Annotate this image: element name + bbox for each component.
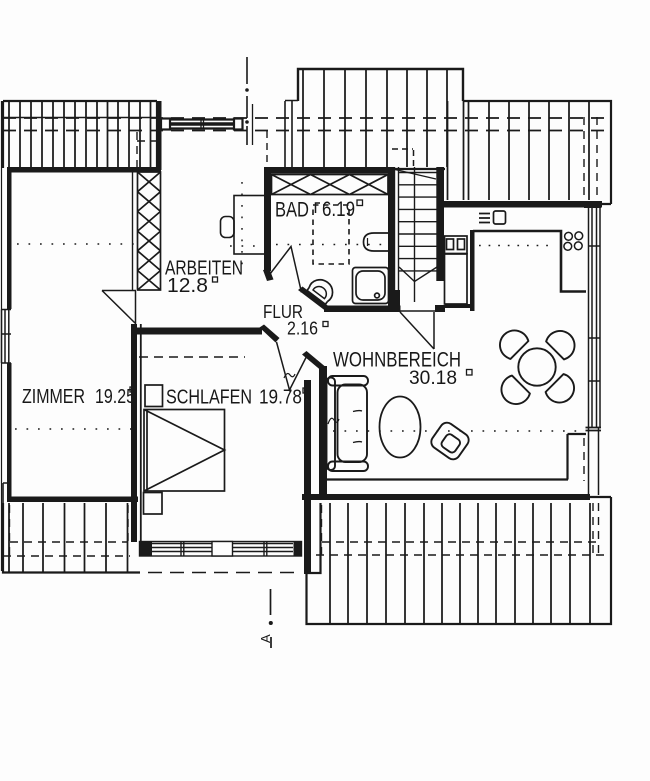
svg-text:19.78: 19.78 [259, 386, 302, 409]
svg-text:BAD: BAD [275, 199, 309, 222]
svg-text:2.16: 2.16 [287, 319, 318, 339]
svg-text:19.25: 19.25 [95, 385, 135, 408]
svg-text:A: A [258, 634, 273, 643]
svg-text:12.8: 12.8 [167, 275, 208, 297]
svg-text:ZIMMER: ZIMMER [22, 385, 85, 408]
svg-text:SCHLAFEN: SCHLAFEN [166, 386, 252, 409]
svg-text:30.18: 30.18 [409, 368, 457, 389]
svg-text:6.19: 6.19 [322, 198, 355, 221]
